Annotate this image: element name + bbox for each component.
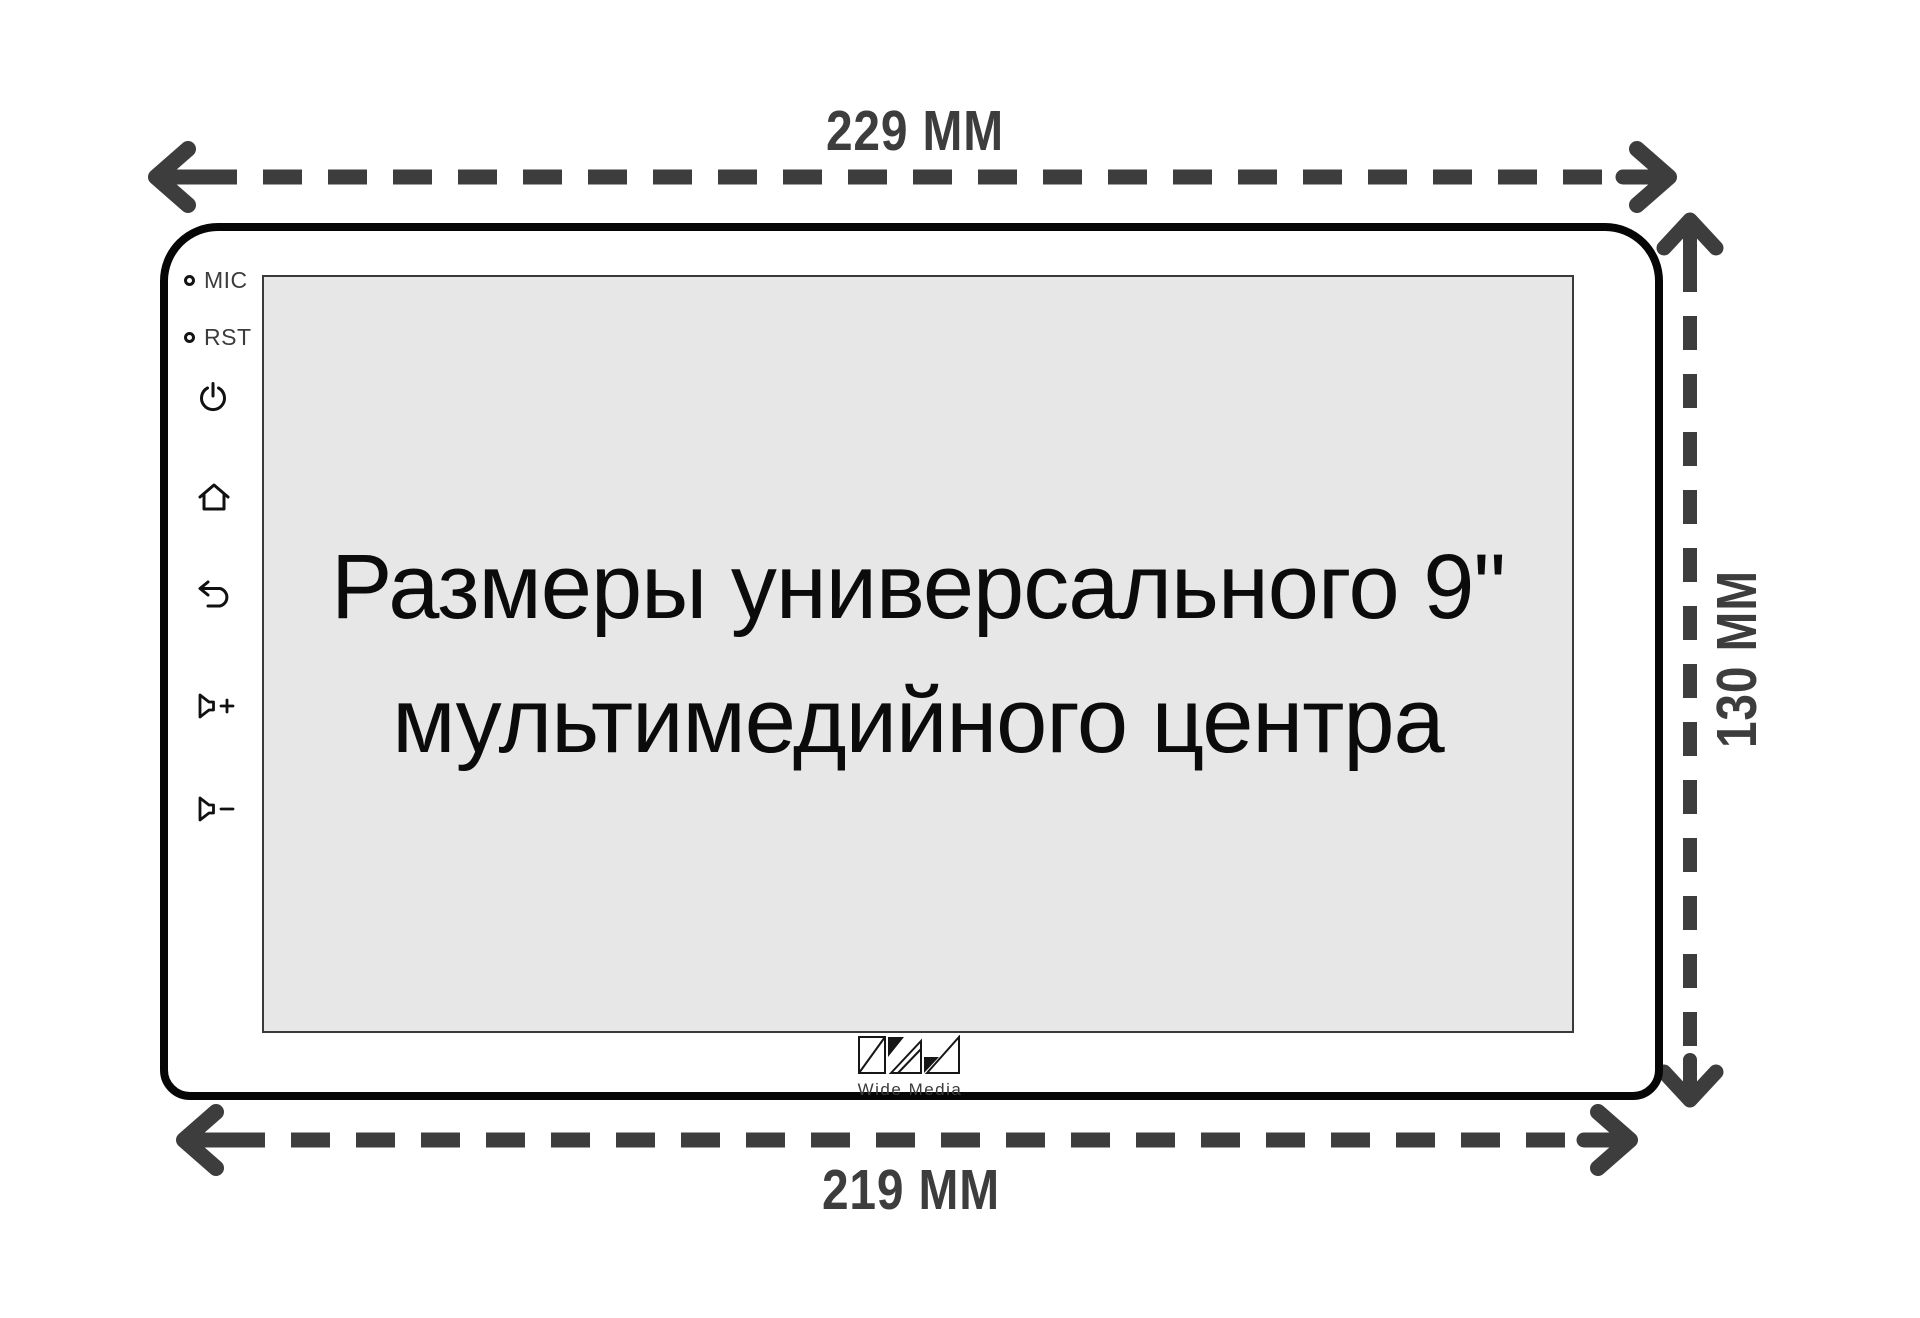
power-icon bbox=[197, 381, 229, 415]
rst-label: RST bbox=[204, 326, 252, 349]
head-unit-screen: Размеры универсального 9" мультимедийног… bbox=[262, 275, 1574, 1033]
mic-label: MIC bbox=[204, 269, 248, 292]
wide-media-logo-text: Wide Media bbox=[845, 1080, 975, 1100]
mic-port: MIC bbox=[184, 267, 248, 293]
screen-title-line1: Размеры универсального 9" bbox=[331, 520, 1505, 654]
rst-port: RST bbox=[184, 324, 252, 350]
rst-hole-icon bbox=[184, 332, 195, 343]
home-icon bbox=[196, 480, 232, 514]
mic-hole-icon bbox=[184, 275, 195, 286]
wide-media-logo-icon bbox=[857, 1035, 963, 1075]
volume-up-icon bbox=[196, 691, 238, 721]
dimension-arrow-bottom bbox=[168, 1103, 1646, 1177]
diagram-canvas: 229 MM 219 MM 130 MM bbox=[0, 0, 1920, 1318]
dimension-arrow-right bbox=[1653, 206, 1727, 1114]
wide-media-logo: Wide Media bbox=[845, 1035, 975, 1100]
screen-title-line2: мультимедийного центра bbox=[392, 654, 1443, 788]
dimension-arrow-top bbox=[140, 140, 1685, 214]
volume-down-icon bbox=[196, 794, 238, 824]
back-icon bbox=[195, 579, 233, 609]
